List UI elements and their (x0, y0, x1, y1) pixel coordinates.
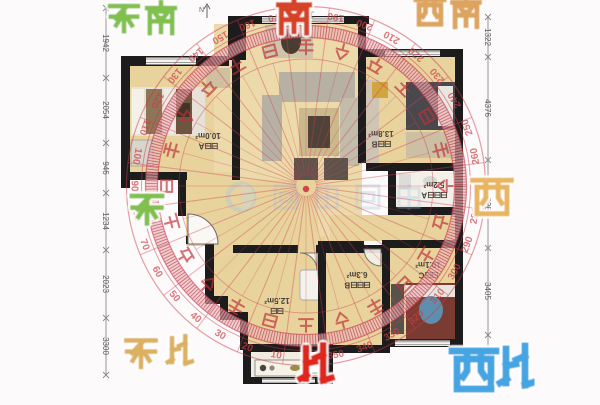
svg-text:210: 210 (382, 28, 402, 46)
svg-text:2054: 2054 (101, 101, 110, 119)
svg-text:90: 90 (129, 180, 140, 192)
svg-text:260: 260 (468, 147, 482, 166)
svg-text:B: B (371, 140, 377, 149)
svg-text:1322: 1322 (483, 28, 492, 46)
svg-text:1942: 1942 (101, 34, 110, 52)
svg-text:12.5m²: 12.5m² (264, 296, 290, 305)
svg-text:70: 70 (137, 238, 151, 253)
svg-text:13.8m²: 13.8m² (368, 129, 394, 138)
svg-text:3405: 3405 (483, 282, 492, 300)
svg-text:2023: 2023 (101, 275, 110, 293)
svg-text:5.2m²: 5.2m² (423, 180, 444, 189)
svg-text:1234: 1234 (101, 212, 110, 230)
svg-text:A: A (421, 191, 427, 200)
svg-text:190: 190 (326, 10, 345, 24)
svg-text:N: N (199, 7, 204, 14)
svg-text:10.0m²: 10.0m² (195, 131, 221, 140)
svg-text:946: 946 (101, 161, 110, 175)
svg-text:4376: 4376 (483, 99, 492, 117)
svg-text:3300: 3300 (101, 337, 110, 355)
svg-text:350: 350 (327, 348, 346, 362)
